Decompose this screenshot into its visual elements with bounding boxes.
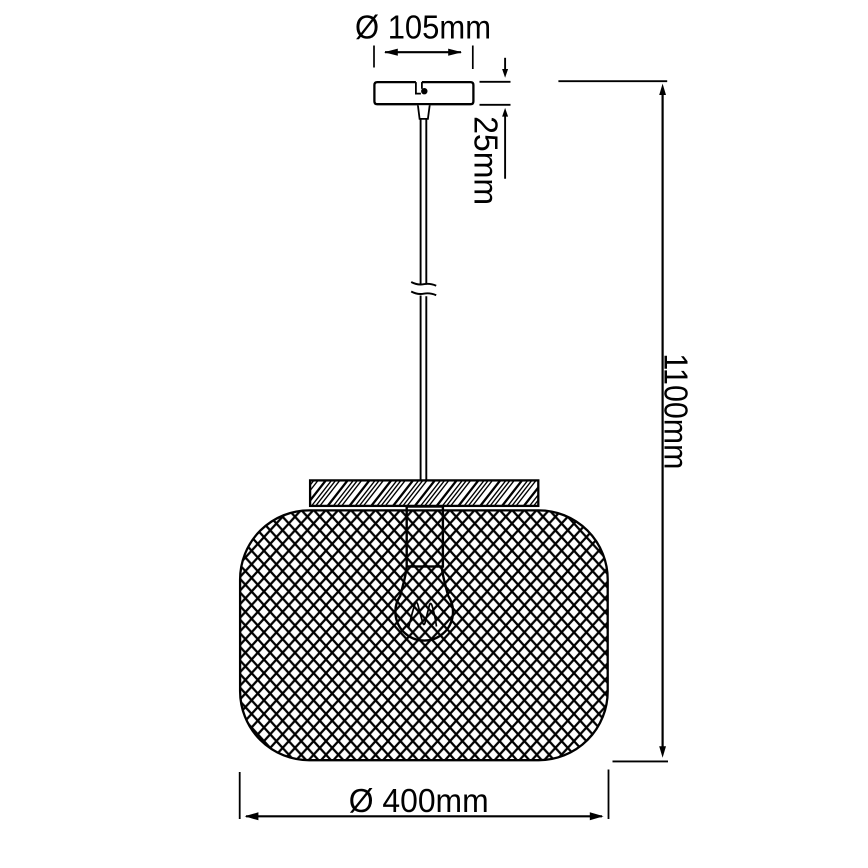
svg-text:1100mm: 1100mm [657, 353, 694, 469]
svg-text:Ø 105mm: Ø 105mm [355, 9, 491, 46]
svg-text:Ø 400mm: Ø 400mm [349, 783, 489, 820]
svg-text:25mm: 25mm [467, 116, 504, 205]
